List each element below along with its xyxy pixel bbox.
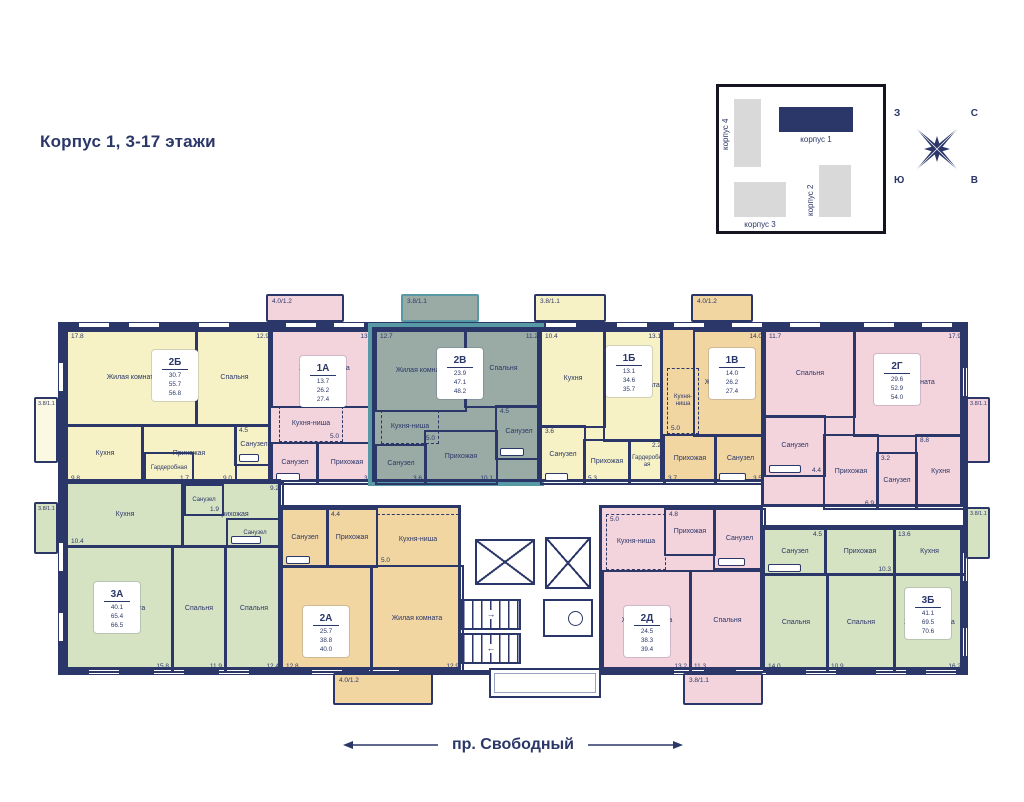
room-area: 10.3 <box>878 566 891 573</box>
room: Прихожая4.4 <box>326 508 378 568</box>
minimap-label-building-1: корпус 1 <box>779 135 853 144</box>
room-name: Кухня <box>96 450 115 458</box>
room-name: Спальня <box>782 619 810 627</box>
area-living: 41.1 <box>905 609 951 618</box>
room-name: Кухня <box>116 511 135 519</box>
room-bathroom: Санузел3.5 <box>714 434 767 485</box>
room-name: Санузел <box>505 428 532 436</box>
room-area: 9.2 <box>270 485 279 492</box>
apartment-2b[interactable]: Жилая комната17.8 Спальня12.9 Кухня9.8 П… <box>63 327 271 482</box>
bathtub-icon <box>718 558 745 566</box>
minimap-label-building-3: корпус 3 <box>734 220 786 229</box>
room-kitchen-niche: Кухня-ниша5.0 <box>279 406 343 442</box>
page-title: Корпус 1, 3-17 этажи <box>40 132 216 152</box>
room-area: 4.4 <box>331 511 340 518</box>
room-name: Жилая комната <box>392 615 443 623</box>
bathtub-icon <box>719 473 746 481</box>
room-name: Спальня <box>847 619 875 627</box>
area-with-balcony: 40.0 <box>303 645 349 654</box>
room-name: Спальня <box>489 365 517 373</box>
apartment-2g[interactable]: Спальня11.7 Жилая комната17.9 Санузел4.4… <box>761 327 963 507</box>
room-name: Прихожая <box>591 458 623 466</box>
room-area: 5.0 <box>381 557 390 564</box>
room: Кухня13.6 <box>893 528 966 576</box>
elevator-shaft <box>475 539 535 585</box>
room: Кухня10.4 <box>66 482 184 548</box>
room: Прихожая3.7 <box>663 434 717 485</box>
area-total: 38.8 <box>303 636 349 645</box>
compass-north-label: С <box>971 108 978 119</box>
minimap-label-building-2: корпус 2 <box>806 165 816 235</box>
bathtub-icon <box>545 473 568 481</box>
area-with-balcony: 56.8 <box>152 389 198 398</box>
floor-plan: 4.0/1.2 3.8/1.1 3.8/1.1 4.0/1.2 4.0/1.2 … <box>58 322 968 675</box>
room-area: 12.7 <box>380 333 393 340</box>
arrow-right-icon <box>588 739 683 751</box>
room: Спальня11.9 <box>171 545 227 673</box>
area-total: 34.6 <box>606 376 652 385</box>
room: Кухня10.4 <box>540 330 606 428</box>
apartment-info-card: 2В 23.9 47.1 48.2 <box>437 348 483 399</box>
apartment-info-card: 2Б 30.7 55.7 56.8 <box>152 350 198 401</box>
minimap-building-2[interactable] <box>819 165 851 217</box>
area-with-balcony: 39.4 <box>624 645 670 654</box>
area-living: 13.1 <box>606 367 652 376</box>
room-bathroom: Санузел3.6 <box>540 425 586 485</box>
area-with-balcony: 70.6 <box>905 627 951 636</box>
room-name: Санузел <box>549 451 576 459</box>
stairs-flight: → <box>461 599 521 630</box>
room-name: Кухня-ниша <box>617 538 655 546</box>
area-total: 47.1 <box>437 378 483 387</box>
room-area: 8.8 <box>920 437 929 444</box>
apartment-type-label: 3А <box>104 589 131 602</box>
room-bathroom: Санузел3.2 <box>876 452 918 510</box>
area-total: 26.2 <box>709 378 755 387</box>
room-area: 10.1 <box>480 475 493 482</box>
room-name: Спальня <box>240 605 268 613</box>
apartment-type-label: 1А <box>310 363 337 376</box>
room-name: Кухня-ниша <box>669 394 697 408</box>
area-living: 14.0 <box>709 369 755 378</box>
area-with-balcony: 27.4 <box>709 387 755 396</box>
room-area: 3.6 <box>545 428 554 435</box>
room-area: 3.2 <box>881 455 890 462</box>
apartment-1b[interactable]: Кухня10.4 Жилая комната13.1 Санузел3.6 П… <box>537 327 663 482</box>
balcony-tag-top-2-highlighted: 3.8/1.1 <box>401 294 479 322</box>
room-name: Спальня <box>185 605 213 613</box>
room: Прихожая3.9 <box>316 442 378 485</box>
room-name: Прихожая <box>445 453 477 461</box>
room-area: 4.8 <box>669 511 678 518</box>
apartment-1a[interactable]: Жилая комната13.7 Кухня-ниша5.0 Санузел3… <box>268 327 375 482</box>
balcony-tag-top-1: 4.0/1.2 <box>266 294 344 322</box>
room-name: Кухня-ниша <box>399 536 437 544</box>
room-bathroom: Санузел4.5 <box>495 405 543 460</box>
apartment-type-label: 2А <box>313 613 340 626</box>
room-name: Санузел <box>387 460 414 468</box>
apartment-3b[interactable]: Санузел4.5 Прихожая10.3 Кухня13.6 Спальн… <box>760 525 963 670</box>
room-area: 10.9 <box>831 663 844 670</box>
room-name: Санузел <box>281 459 308 467</box>
minimap-building-1-highlighted[interactable] <box>779 107 853 132</box>
room-name: Гардеробная <box>151 465 187 472</box>
apartment-type-label: 2Д <box>634 613 661 626</box>
apartment-type-label: 1Б <box>616 353 643 366</box>
room-name: Спальня <box>220 374 248 382</box>
area-with-balcony: 54.0 <box>874 393 920 402</box>
area-total: 55.7 <box>152 380 198 389</box>
balcony-area-label: 3.8/1.1 <box>38 506 55 512</box>
room: Спальня12.4 <box>224 545 284 673</box>
apartment-info-card: 3А 40.1 65.4 66.5 <box>94 582 140 633</box>
room-area: 10.4 <box>71 538 84 545</box>
bathtub-icon <box>239 454 259 462</box>
compass-east-label: В <box>971 175 978 186</box>
bathtub-icon <box>500 448 524 456</box>
site-minimap: корпус 4 корпус 1 корпус 2 корпус 3 <box>716 84 886 234</box>
apartment-3a[interactable]: Кухня10.4 Прихожая9.2 Санузел1.9 Санузел… <box>63 479 281 670</box>
room-bathroom: Санузел1.9 <box>184 484 224 516</box>
minimap-label-building-4: корпус 4 <box>721 99 731 169</box>
room-name: Прихожая <box>336 534 368 542</box>
room: Жилая комната12.9 <box>370 565 464 673</box>
bathtub-icon <box>768 564 801 572</box>
balcony-tag-left-1: 3.8/1.1 <box>34 397 58 463</box>
area-with-balcony: 66.5 <box>94 621 140 630</box>
arrow-left-icon <box>343 739 438 751</box>
room-bathroom: Санузел4.0 <box>713 508 766 570</box>
apartment-2d[interactable]: Кухня-ниша5.0 Прихожая4.8 Санузел4.0 Жил… <box>599 505 763 670</box>
area-total: 26.2 <box>300 386 346 395</box>
room-area: 17.9 <box>948 333 961 340</box>
room-kitchen-niche: Кухня-ниша5.0 <box>667 368 699 434</box>
area-living: 25.7 <box>303 627 349 636</box>
vestibule-inner-line <box>494 673 596 693</box>
elevator-shaft <box>545 537 591 589</box>
balcony-tag-left-2: 3.8/1.1 <box>34 502 58 554</box>
room-name: Санузел <box>781 548 808 556</box>
room-area: 12.9 <box>446 663 459 670</box>
room-name: Гардеробная <box>631 455 663 469</box>
room: Кухня9.8 <box>66 424 144 485</box>
balcony-tag-bottom-2: 3.8/1.1 <box>683 673 763 705</box>
room-area: 16.2 <box>948 663 961 670</box>
room-name: Прихожая <box>835 468 867 476</box>
room-name: Санузел <box>240 441 267 449</box>
room-area: 11.3 <box>694 663 706 670</box>
room: Прихожая6.9 <box>823 434 879 510</box>
street-name: пр. Свободный <box>452 736 574 754</box>
apartment-info-card: 3Б 41.1 69.5 70.6 <box>905 588 951 639</box>
balcony-area-label: 4.0/1.2 <box>272 298 292 305</box>
room-area: 4.5 <box>813 531 822 538</box>
stairs-direction-arrow: ← <box>485 644 498 653</box>
room-area: 11.9 <box>210 663 222 670</box>
room-name: Прихожая <box>674 455 706 463</box>
room-name: Санузел <box>883 477 910 485</box>
apartment-2a[interactable]: Санузел3.7 Прихожая4.4 Кухня-ниша5.0 Спа… <box>278 505 461 670</box>
room-area: 5.0 <box>330 433 339 440</box>
area-living: 24.5 <box>624 627 670 636</box>
bathtub-icon <box>769 465 801 473</box>
room: Спальня14.0 <box>763 573 829 673</box>
compass-star-icon <box>892 104 982 194</box>
minimap-building-3[interactable] <box>734 182 786 217</box>
room-area: 15.8 <box>156 663 169 670</box>
room-name: Санузел <box>291 534 318 542</box>
room-area: 10.4 <box>545 333 558 340</box>
room-area: 3.7 <box>668 475 677 482</box>
room-area: 5.0 <box>671 425 680 432</box>
room: Прихожая5.3 <box>583 439 631 485</box>
room-name: Жилая комната <box>107 374 158 382</box>
room-name: Прихожая <box>674 528 706 536</box>
area-living: 29.6 <box>874 375 920 384</box>
garbage-chute-icon <box>568 611 583 626</box>
minimap-building-4[interactable] <box>734 99 761 167</box>
room-kitchen-niche: Кухня-ниша5.0 <box>606 514 666 570</box>
balcony-area-label: 3.8/1.1 <box>38 401 55 407</box>
compass-west-label: З <box>894 108 900 119</box>
room: Спальня10.9 <box>826 573 896 673</box>
room-area: 1.9 <box>210 506 219 513</box>
apartment-1v[interactable]: Жилая комната14.0 Кухня-ниша5.0 Прихожая… <box>660 327 764 482</box>
balcony-area-label: 3.8/1.1 <box>407 298 427 305</box>
compass-south-label: Ю <box>894 175 904 186</box>
room-bathroom: Санузел4.4 <box>764 415 826 477</box>
street-label-row: пр. Свободный <box>301 736 725 754</box>
balcony-tag-right-1: 3.8/1.1 <box>966 397 990 463</box>
room-name: Санузел <box>192 497 215 504</box>
apartment-info-card: 2Г 29.6 52.9 54.0 <box>874 354 920 405</box>
room: Спальня11.3 <box>689 570 766 673</box>
bathtub-icon <box>231 536 261 544</box>
room-bathroom: Санузел3.8 <box>226 518 284 548</box>
area-with-balcony: 27.4 <box>300 395 346 404</box>
room-name: Санузел <box>781 442 808 450</box>
room-area: 12.8 <box>286 663 299 670</box>
apartment-info-card: 2А 25.7 38.8 40.0 <box>303 606 349 657</box>
room-area: 13.6 <box>898 531 911 538</box>
room-area: 17.8 <box>71 333 84 340</box>
stairs-direction-arrow: → <box>485 610 498 619</box>
room-area: 3.6 <box>413 475 422 482</box>
area-with-balcony: 35.7 <box>606 385 652 394</box>
apartment-2v-highlighted[interactable]: Жилая комната12.7 Спальня11.2 Кухня-ниша… <box>372 327 540 482</box>
room-name: Санузел <box>727 455 754 463</box>
area-living: 23.9 <box>437 369 483 378</box>
apartment-type-label: 2Г <box>884 361 909 374</box>
room-area: 13.2 <box>674 663 687 670</box>
apartment-info-card: 1В 14.0 26.2 27.4 <box>709 348 755 399</box>
room-name: Кухня <box>564 375 583 383</box>
room: Спальня11.7 <box>764 330 856 418</box>
room: Кухня8.8 <box>915 434 966 510</box>
room-name: Спальня <box>796 370 824 378</box>
entrance-vestibule <box>489 668 601 698</box>
balcony-area-label: 3.8/1.1 <box>689 677 709 684</box>
balcony-tag-top-3: 3.8/1.1 <box>534 294 606 322</box>
room-area: 11.7 <box>769 333 781 340</box>
room: Спальня12.9 <box>195 330 274 427</box>
area-total: 52.9 <box>874 384 920 393</box>
apartment-info-card: 1А 13.7 26.2 27.4 <box>300 356 346 407</box>
apartment-info-card: 2Д 24.5 38.3 39.4 <box>624 606 670 657</box>
utility-room <box>543 599 593 637</box>
apartment-type-label: 2В <box>447 355 474 368</box>
area-total: 65.4 <box>94 612 140 621</box>
balcony-tag-bottom-1: 4.0/1.2 <box>333 673 433 705</box>
balcony-area-label: 3.8/1.1 <box>970 511 987 517</box>
area-total: 69.5 <box>905 618 951 627</box>
room-area: 5.3 <box>588 475 597 482</box>
stairs-flight: ← <box>461 633 521 664</box>
room-area: 14.0 <box>768 663 781 670</box>
apartment-type-label: 2Б <box>162 357 189 370</box>
room-area: 5.0 <box>610 516 619 523</box>
bathtub-icon <box>286 556 310 564</box>
balcony-area-label: 3.8/1.1 <box>540 298 560 305</box>
room: Прихожая10.3 <box>824 528 896 576</box>
apartment-type-label: 3Б <box>915 595 942 608</box>
room-name: Прихожая <box>844 548 876 556</box>
room-name: Кухня <box>920 548 939 556</box>
room-area: 4.5 <box>239 427 248 434</box>
balcony-area-label: 4.0/1.2 <box>339 677 359 684</box>
area-living: 13.7 <box>300 377 346 386</box>
apartment-info-card: 1Б 13.1 34.6 35.7 <box>606 346 652 397</box>
room-kitchen-niche: Кухня-ниша5.0 <box>377 514 459 566</box>
balcony-area-label: 3.8/1.1 <box>970 401 987 407</box>
room-area: 6.9 <box>865 500 874 507</box>
apartment-type-label: 1В <box>719 355 746 368</box>
room-bathroom: Санузел3.6 <box>375 444 427 485</box>
room-name: Кухня-ниша <box>292 420 330 428</box>
area-total: 38.3 <box>624 636 670 645</box>
room-bathroom: Санузел4.5 <box>763 528 827 576</box>
area-living: 30.7 <box>152 371 198 380</box>
balcony-tag-right-2: 3.8/1.1 <box>966 507 990 559</box>
room: Прихожая10.1 <box>424 430 498 485</box>
area-with-balcony: 48.2 <box>437 387 483 396</box>
room: Прихожая4.8 <box>664 508 716 556</box>
balcony-area-label: 4.0/1.2 <box>697 298 717 305</box>
room-area: 4.5 <box>500 408 509 415</box>
room-name: Спальня <box>713 617 741 625</box>
room-name: Санузел <box>726 535 753 543</box>
room-area: 4.4 <box>812 467 821 474</box>
room-name: Кухня <box>931 468 950 476</box>
area-living: 40.1 <box>94 603 140 612</box>
room-name: Прихожая <box>331 459 363 467</box>
compass-rose: З С Ю В <box>892 104 982 194</box>
balcony-tag-top-4: 4.0/1.2 <box>691 294 753 322</box>
room-bathroom: Санузел3.7 <box>281 508 329 568</box>
